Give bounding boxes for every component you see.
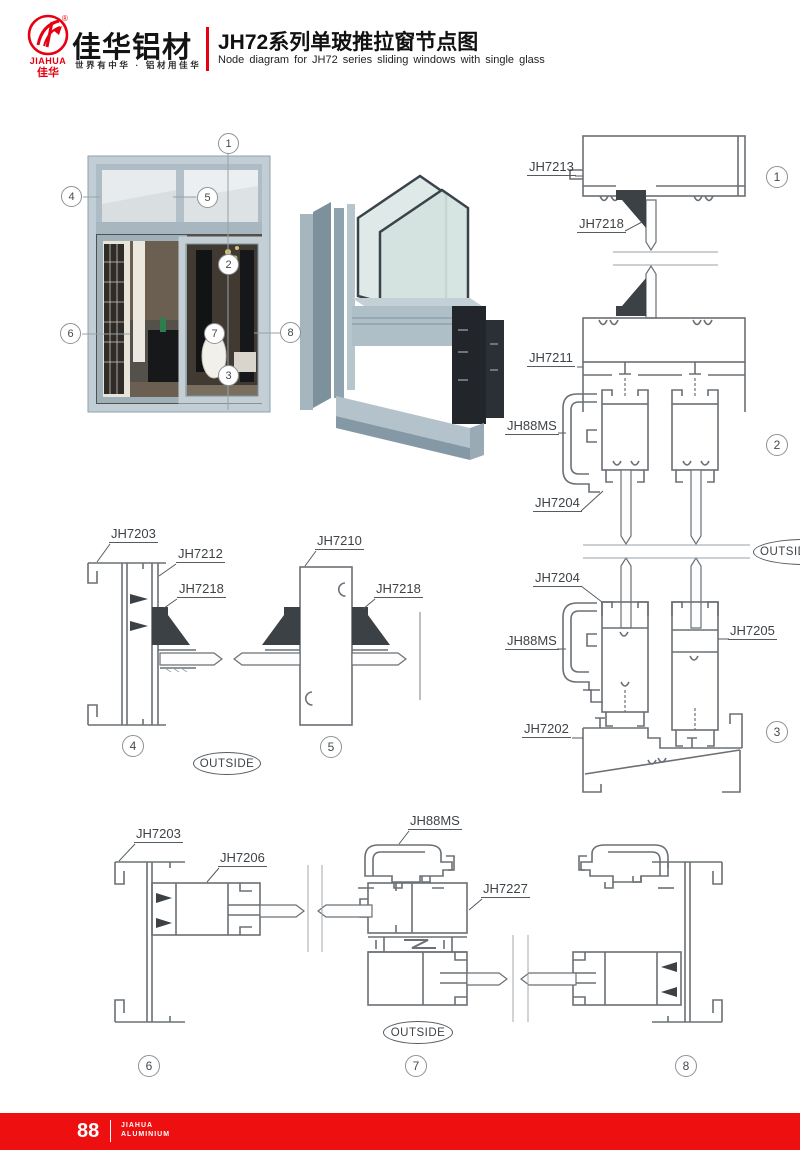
footer-brand-line1: JIAHUA [121,1122,170,1131]
section-circle-8: 8 [675,1055,697,1077]
label-jh7211: JH7211 [527,351,575,367]
footer-separator [110,1120,111,1142]
label-jh7203-s4: JH7203 [109,527,158,543]
photo-callout-7: 7 [204,323,225,344]
catalog-page: ® JIAHUA 佳华 佳华铝材 世界有中华 · 铝材用佳华 JH72系列单玻推… [0,0,800,1167]
footer-page-number: 88 [77,1120,99,1143]
section-circle-6: 6 [138,1055,160,1077]
label-jh7218-s4: JH7218 [177,582,226,598]
footer-brand-line2: ALUMINIUM [121,1131,170,1140]
section-circle-3: 3 [766,721,788,743]
outside-oval-mid: OUTSIDE [193,752,261,775]
footer-bar [0,1113,800,1150]
photo-callout-8: 8 [280,322,301,343]
label-jh7204-s3: JH7204 [533,571,582,587]
section-circle-1: 1 [766,166,788,188]
section-circle-5: 5 [320,736,342,758]
label-jh7218-s1: JH7218 [577,217,626,233]
photo-callout-5: 5 [197,187,218,208]
label-jh7227: JH7227 [481,882,530,898]
photo-callout-6: 6 [60,323,81,344]
photo-callout-4: 4 [61,186,82,207]
photo-callout-1: 1 [218,133,239,154]
label-jh7204-s2: JH7204 [533,496,582,512]
label-jh7206: JH7206 [218,851,267,867]
label-jh88ms-s3: JH88MS [505,634,559,650]
label-jh7213: JH7213 [527,160,576,176]
label-jh7212: JH7212 [176,547,225,563]
label-jh7218-s5: JH7218 [374,582,423,598]
window-photo [88,156,270,412]
label-jh7205: JH7205 [728,624,777,640]
section-circle-4: 4 [122,735,144,757]
photo-callout-3: 3 [218,365,239,386]
label-jh88ms-s7: JH88MS [408,814,462,830]
outside-oval-bottom: OUTSIDE [383,1021,453,1044]
profile-3d-render [300,176,504,460]
section-circle-2: 2 [766,434,788,456]
section-circle-7: 7 [405,1055,427,1077]
label-jh7202: JH7202 [522,722,571,738]
label-jh7203-s6: JH7203 [134,827,183,843]
label-jh88ms-s2: JH88MS [505,419,559,435]
footer-brand: JIAHUA ALUMINIUM [121,1122,170,1139]
label-jh7210: JH7210 [315,534,364,550]
brush-seals [625,378,695,730]
photo-callout-2: 2 [218,254,239,275]
